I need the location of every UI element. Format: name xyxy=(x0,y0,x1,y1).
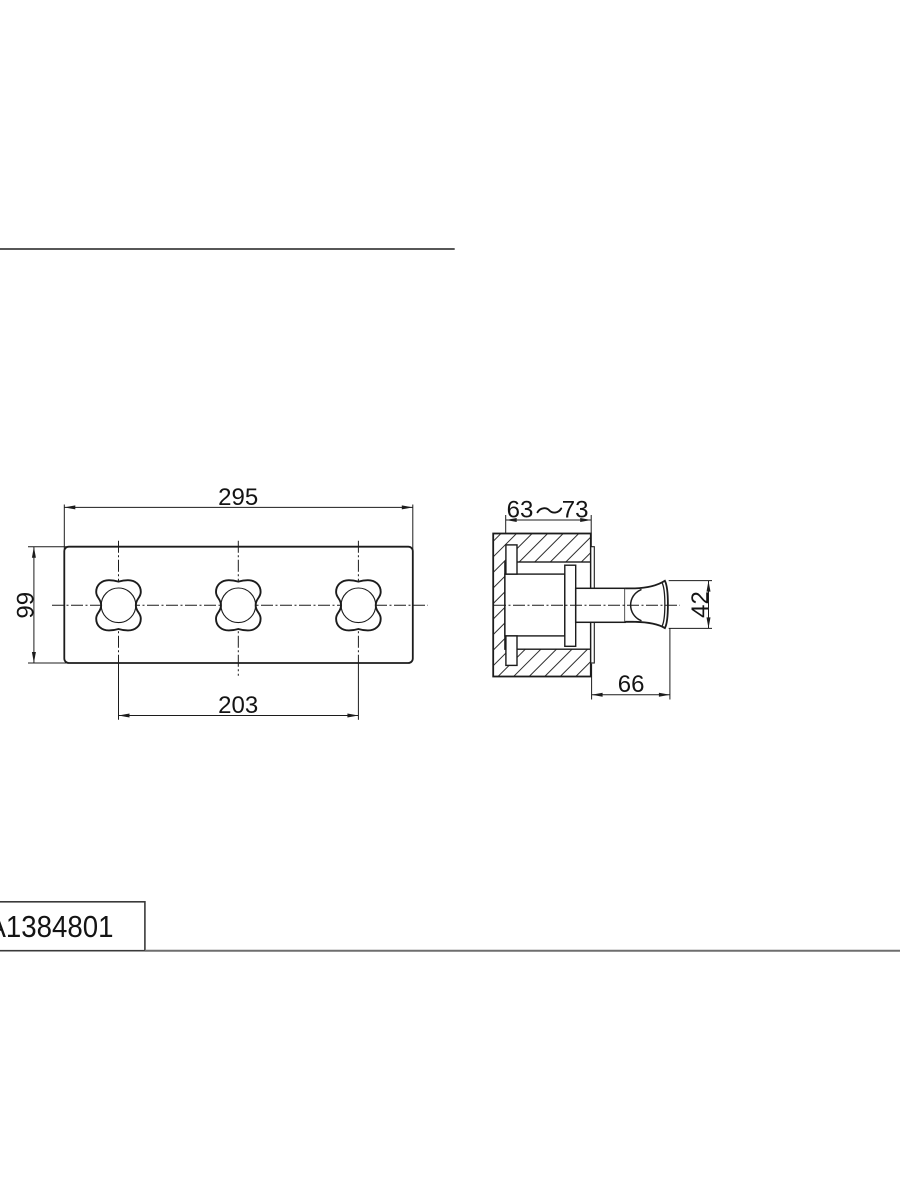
svg-text:A1384801: A1384801 xyxy=(0,910,113,944)
svg-text:99: 99 xyxy=(13,592,40,619)
svg-text:66: 66 xyxy=(618,671,645,698)
svg-text:73: 73 xyxy=(562,497,589,524)
svg-text:203: 203 xyxy=(218,692,258,719)
svg-text:42: 42 xyxy=(687,591,714,618)
svg-text:295: 295 xyxy=(218,484,258,511)
svg-text:63: 63 xyxy=(507,497,534,524)
